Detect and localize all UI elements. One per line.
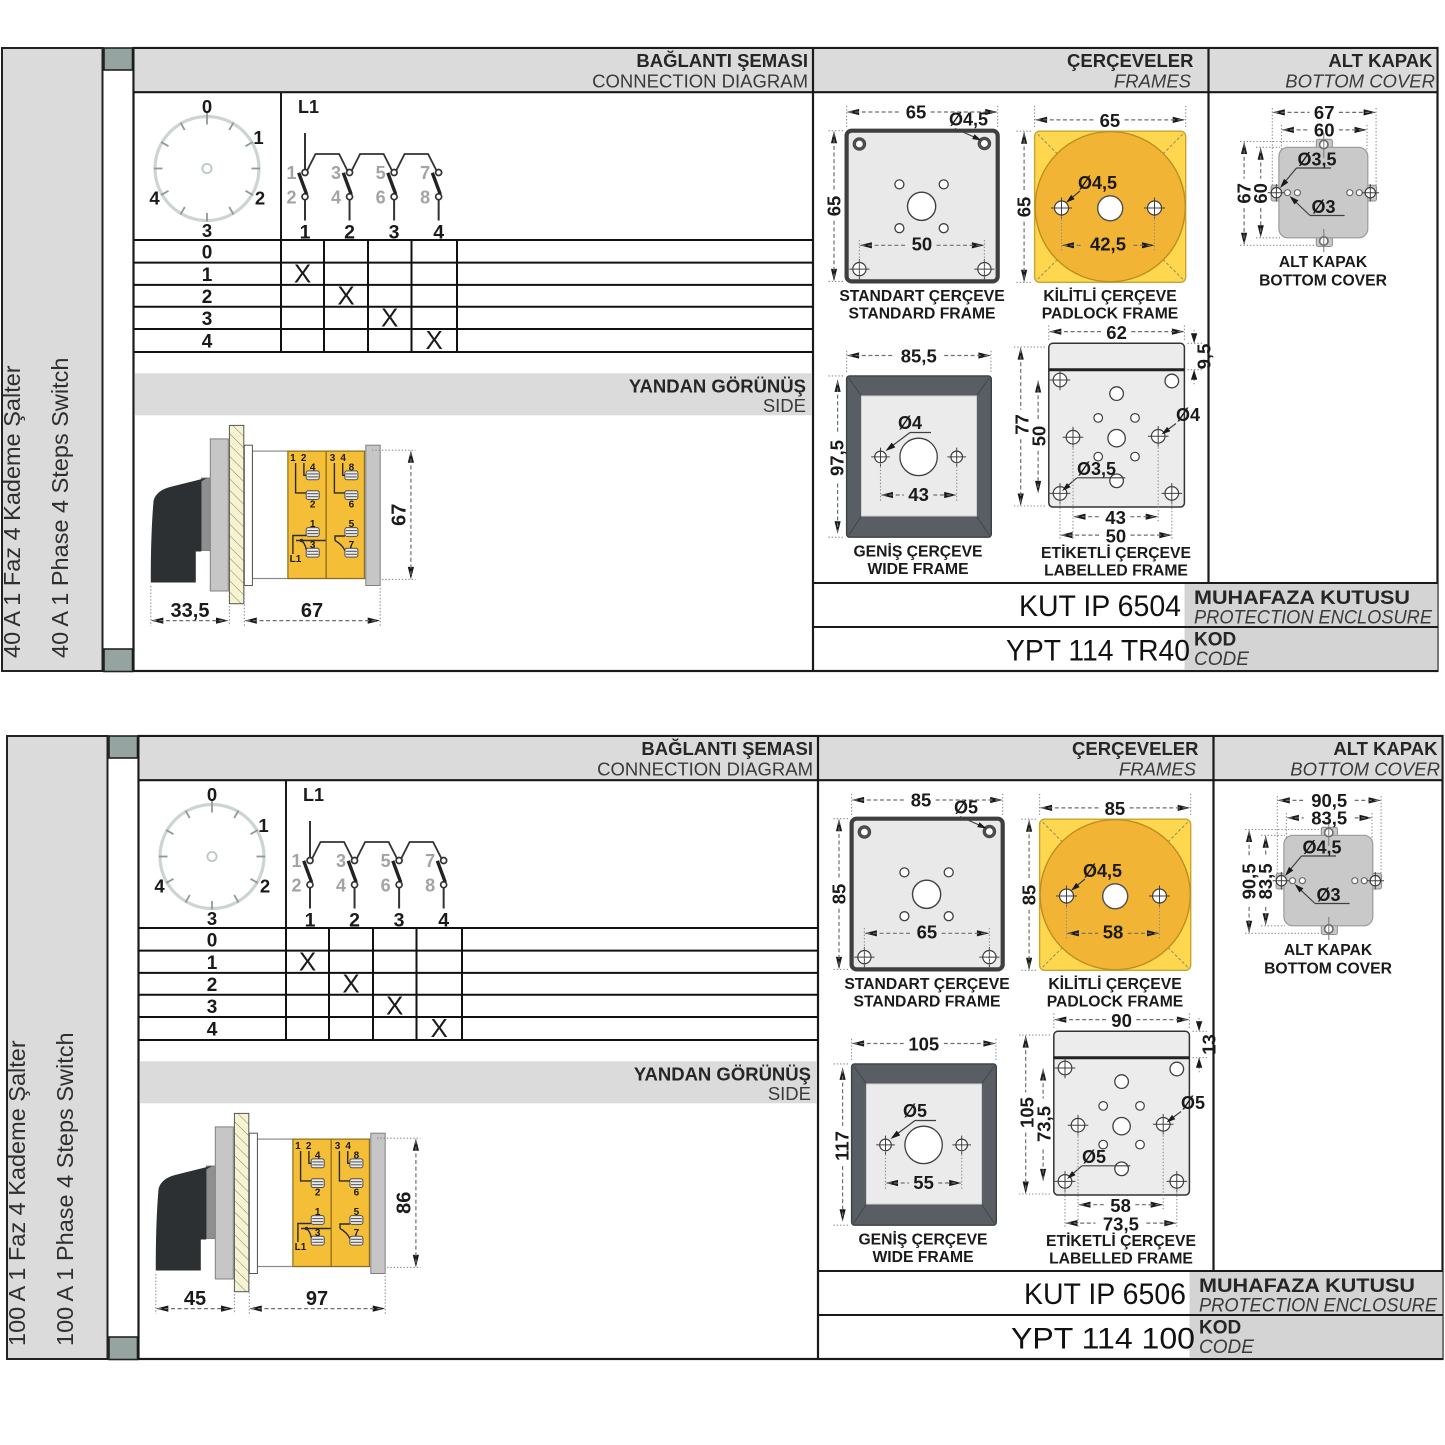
svg-text:8: 8 (420, 187, 430, 207)
svg-text:1: 1 (290, 453, 296, 464)
svg-text:7: 7 (420, 163, 430, 183)
svg-text:83,5: 83,5 (1255, 863, 1276, 899)
svg-text:ETİKETLİ ÇERÇEVE: ETİKETLİ ÇERÇEVE (1041, 544, 1191, 562)
svg-text:6: 6 (381, 875, 391, 895)
svg-text:62: 62 (1106, 322, 1127, 343)
svg-text:PADLOCK FRAME: PADLOCK FRAME (1047, 994, 1184, 1011)
svg-text:0: 0 (207, 784, 217, 805)
svg-text:1: 1 (207, 953, 218, 974)
svg-text:1: 1 (310, 519, 316, 530)
svg-text:85: 85 (1019, 885, 1040, 906)
svg-text:85,5: 85,5 (901, 346, 937, 367)
svg-text:3: 3 (207, 997, 218, 1018)
svg-text:BOTTOM COVER: BOTTOM COVER (1290, 759, 1440, 780)
svg-text:3: 3 (335, 1141, 341, 1152)
svg-text:YANDAN GÖRÜNÜŞ: YANDAN GÖRÜNÜŞ (634, 1064, 811, 1085)
svg-text:PROTECTION ENCLOSURE: PROTECTION ENCLOSURE (1194, 608, 1432, 629)
svg-text:Ø4,5: Ø4,5 (1083, 861, 1122, 881)
svg-text:0: 0 (202, 96, 212, 117)
svg-text:5: 5 (354, 1207, 360, 1218)
svg-text:40 A 1 Phase 4 Steps Switch: 40 A 1 Phase 4 Steps Switch (47, 358, 73, 658)
svg-text:X: X (426, 325, 443, 355)
svg-text:3: 3 (330, 453, 336, 464)
svg-text:X: X (431, 1013, 448, 1043)
svg-text:1: 1 (202, 265, 213, 286)
svg-text:3: 3 (202, 309, 213, 330)
svg-text:2: 2 (301, 453, 307, 464)
svg-text:CODE: CODE (1199, 1337, 1254, 1358)
svg-text:Ø5: Ø5 (954, 798, 978, 818)
svg-text:2: 2 (291, 875, 301, 895)
svg-text:60: 60 (1314, 120, 1335, 141)
svg-text:ALT KAPAK: ALT KAPAK (1328, 50, 1433, 71)
svg-text:FRAMES: FRAMES (1119, 759, 1197, 780)
svg-text:SIDE: SIDE (768, 1083, 811, 1104)
svg-text:X: X (381, 302, 398, 332)
svg-text:0: 0 (207, 930, 218, 951)
svg-text:1: 1 (295, 1141, 301, 1152)
svg-text:6: 6 (354, 1188, 360, 1199)
svg-text:LABELLED FRAME: LABELLED FRAME (1044, 563, 1188, 580)
svg-text:8: 8 (425, 875, 435, 895)
svg-text:3: 3 (336, 851, 346, 871)
svg-text:9,5: 9,5 (1194, 344, 1215, 370)
svg-text:50: 50 (1106, 526, 1127, 547)
svg-text:100 A 1 Phase 4 Steps Switch: 100 A 1 Phase 4 Steps Switch (52, 1032, 78, 1346)
svg-text:LABELLED FRAME: LABELLED FRAME (1049, 1251, 1193, 1268)
svg-text:X: X (337, 280, 354, 310)
svg-text:GENİŞ ÇERÇEVE: GENİŞ ÇERÇEVE (853, 543, 982, 561)
svg-text:MUHAFAZA KUTUSU: MUHAFAZA KUTUSU (1199, 1276, 1415, 1297)
svg-text:60: 60 (1250, 183, 1271, 204)
svg-text:3: 3 (202, 220, 212, 241)
svg-text:100 A 1 Faz 4 Kademe Şalter: 100 A 1 Faz 4 Kademe Şalter (4, 1040, 30, 1346)
svg-text:67: 67 (301, 600, 323, 622)
svg-text:PROTECTION ENCLOSURE: PROTECTION ENCLOSURE (1199, 1296, 1437, 1317)
svg-text:STANDARD FRAME: STANDARD FRAME (849, 306, 996, 323)
svg-text:3: 3 (331, 163, 341, 183)
svg-text:0: 0 (202, 242, 213, 263)
svg-text:BAĞLANTI ŞEMASI: BAĞLANTI ŞEMASI (636, 50, 808, 71)
svg-text:BAĞLANTI ŞEMASI: BAĞLANTI ŞEMASI (641, 738, 813, 759)
svg-text:2: 2 (255, 188, 265, 209)
svg-text:73,5: 73,5 (1034, 1106, 1055, 1142)
svg-text:ALT KAPAK: ALT KAPAK (1333, 738, 1438, 759)
svg-text:6: 6 (349, 500, 355, 511)
svg-text:STANDART ÇERÇEVE: STANDART ÇERÇEVE (844, 976, 1009, 993)
svg-text:45: 45 (184, 1288, 206, 1310)
svg-text:ÇERÇEVELER: ÇERÇEVELER (1067, 50, 1193, 71)
svg-text:7: 7 (349, 540, 355, 551)
svg-text:4: 4 (336, 875, 346, 895)
svg-text:97,5: 97,5 (827, 440, 848, 476)
svg-text:6: 6 (376, 187, 386, 207)
svg-text:BOTTOM COVER: BOTTOM COVER (1285, 71, 1435, 92)
svg-text:KİLİTLİ ÇERÇEVE: KİLİTLİ ÇERÇEVE (1048, 975, 1181, 993)
svg-text:GENİŞ ÇERÇEVE: GENİŞ ÇERÇEVE (858, 1231, 987, 1249)
svg-text:58: 58 (1103, 922, 1124, 943)
svg-text:40 A 1 Faz 4 Kademe Şalter: 40 A 1 Faz 4 Kademe Şalter (0, 365, 25, 658)
svg-text:1: 1 (258, 815, 268, 836)
svg-text:43: 43 (908, 484, 929, 505)
svg-text:4: 4 (315, 1150, 321, 1161)
svg-text:85: 85 (911, 790, 932, 811)
svg-text:SIDE: SIDE (763, 395, 806, 416)
svg-text:KİLİTLİ ÇERÇEVE: KİLİTLİ ÇERÇEVE (1043, 287, 1176, 305)
svg-text:65: 65 (1100, 110, 1121, 131)
svg-text:WIDE FRAME: WIDE FRAME (867, 561, 968, 578)
svg-text:Ø5: Ø5 (1181, 1093, 1205, 1113)
svg-text:YANDAN GÖRÜNÜŞ: YANDAN GÖRÜNÜŞ (629, 376, 806, 397)
svg-text:2: 2 (207, 975, 218, 996)
svg-text:3: 3 (310, 540, 316, 551)
svg-text:2: 2 (202, 287, 213, 308)
svg-text:CONNECTION DIAGRAM: CONNECTION DIAGRAM (592, 71, 808, 92)
svg-text:2: 2 (306, 1141, 312, 1152)
svg-text:83,5: 83,5 (1311, 808, 1347, 829)
svg-text:4: 4 (310, 462, 316, 473)
svg-text:55: 55 (913, 1172, 934, 1193)
svg-text:85: 85 (829, 884, 850, 905)
svg-text:CODE: CODE (1194, 649, 1249, 670)
svg-text:MUHAFAZA KUTUSU: MUHAFAZA KUTUSU (1194, 588, 1410, 609)
svg-text:105: 105 (908, 1034, 939, 1055)
svg-text:4: 4 (345, 1141, 351, 1152)
svg-text:ALT KAPAK: ALT KAPAK (1284, 942, 1373, 959)
svg-text:33,5: 33,5 (171, 600, 210, 622)
svg-text:L1: L1 (295, 1242, 307, 1253)
svg-text:13: 13 (1199, 1034, 1220, 1055)
svg-text:5: 5 (381, 851, 391, 871)
svg-text:117: 117 (832, 1131, 853, 1161)
svg-text:Ø4,5: Ø4,5 (949, 110, 988, 130)
svg-text:1: 1 (253, 127, 263, 148)
svg-text:2: 2 (260, 876, 270, 897)
svg-text:4: 4 (207, 1020, 218, 1041)
svg-text:86: 86 (394, 1192, 416, 1214)
svg-text:ETİKETLİ ÇERÇEVE: ETİKETLİ ÇERÇEVE (1046, 1232, 1196, 1250)
svg-text:X: X (299, 946, 316, 976)
svg-text:L1: L1 (290, 554, 302, 565)
svg-text:KOD: KOD (1199, 1318, 1241, 1339)
svg-text:5: 5 (349, 519, 355, 530)
svg-text:1: 1 (286, 163, 296, 183)
svg-text:Ø3: Ø3 (1317, 885, 1341, 905)
svg-text:YPT 114 100: YPT 114 100 (1011, 1323, 1195, 1356)
svg-text:8: 8 (349, 462, 355, 473)
svg-text:Ø3: Ø3 (1312, 197, 1336, 217)
svg-text:8: 8 (354, 1150, 360, 1161)
svg-text:L1: L1 (303, 785, 324, 805)
svg-text:4: 4 (331, 187, 341, 207)
svg-text:STANDARD FRAME: STANDARD FRAME (854, 994, 1001, 1011)
svg-text:7: 7 (354, 1228, 360, 1239)
svg-text:X: X (342, 968, 359, 998)
svg-text:FRAMES: FRAMES (1114, 71, 1192, 92)
svg-text:1: 1 (291, 851, 301, 871)
svg-text:5: 5 (376, 163, 386, 183)
svg-text:50: 50 (912, 234, 933, 255)
svg-text:3: 3 (315, 1228, 321, 1239)
svg-text:CONNECTION DIAGRAM: CONNECTION DIAGRAM (597, 759, 813, 780)
svg-text:97: 97 (306, 1288, 328, 1310)
svg-text:4: 4 (340, 453, 346, 464)
svg-text:Ø4: Ø4 (1176, 405, 1200, 425)
svg-text:42,5: 42,5 (1090, 234, 1126, 255)
svg-text:PADLOCK FRAME: PADLOCK FRAME (1042, 306, 1179, 323)
svg-text:4: 4 (149, 188, 160, 209)
svg-text:BOTTOM COVER: BOTTOM COVER (1264, 961, 1392, 978)
svg-text:4: 4 (154, 876, 165, 897)
svg-text:65: 65 (824, 196, 845, 217)
svg-text:90: 90 (1111, 1010, 1132, 1031)
svg-text:Ø4,5: Ø4,5 (1303, 838, 1342, 858)
svg-text:85: 85 (1105, 798, 1126, 819)
svg-text:STANDART ÇERÇEVE: STANDART ÇERÇEVE (839, 288, 1004, 305)
svg-text:X: X (294, 258, 311, 288)
svg-text:50: 50 (1029, 426, 1050, 447)
svg-text:4: 4 (202, 332, 213, 353)
svg-text:65: 65 (906, 102, 927, 123)
svg-text:L1: L1 (298, 97, 319, 117)
svg-text:67: 67 (389, 504, 411, 526)
svg-text:KUT IP 6504: KUT IP 6504 (1019, 590, 1181, 623)
svg-text:ALT KAPAK: ALT KAPAK (1279, 254, 1368, 271)
svg-text:3: 3 (207, 908, 217, 929)
svg-text:65: 65 (917, 922, 938, 943)
svg-text:73,5: 73,5 (1103, 1214, 1139, 1235)
svg-text:2: 2 (310, 500, 316, 511)
svg-text:BOTTOM COVER: BOTTOM COVER (1259, 273, 1387, 290)
svg-text:KUT IP 6506: KUT IP 6506 (1024, 1278, 1186, 1311)
svg-text:65: 65 (1014, 197, 1035, 218)
svg-text:X: X (386, 990, 403, 1020)
svg-text:YPT 114 TR40: YPT 114 TR40 (1006, 635, 1190, 668)
svg-text:Ø4,5: Ø4,5 (1078, 173, 1117, 193)
svg-text:Ø4: Ø4 (898, 413, 922, 433)
svg-text:Ø5: Ø5 (903, 1101, 927, 1121)
svg-text:Ø3,5: Ø3,5 (1077, 459, 1116, 479)
svg-text:Ø3,5: Ø3,5 (1298, 150, 1337, 170)
svg-text:2: 2 (315, 1188, 321, 1199)
svg-text:ÇERÇEVELER: ÇERÇEVELER (1072, 738, 1198, 759)
svg-text:KOD: KOD (1194, 630, 1236, 651)
svg-text:1: 1 (315, 1207, 321, 1218)
svg-text:7: 7 (425, 851, 435, 871)
svg-text:WIDE FRAME: WIDE FRAME (872, 1249, 973, 1266)
svg-text:Ø5: Ø5 (1082, 1147, 1106, 1167)
svg-text:2: 2 (286, 187, 296, 207)
